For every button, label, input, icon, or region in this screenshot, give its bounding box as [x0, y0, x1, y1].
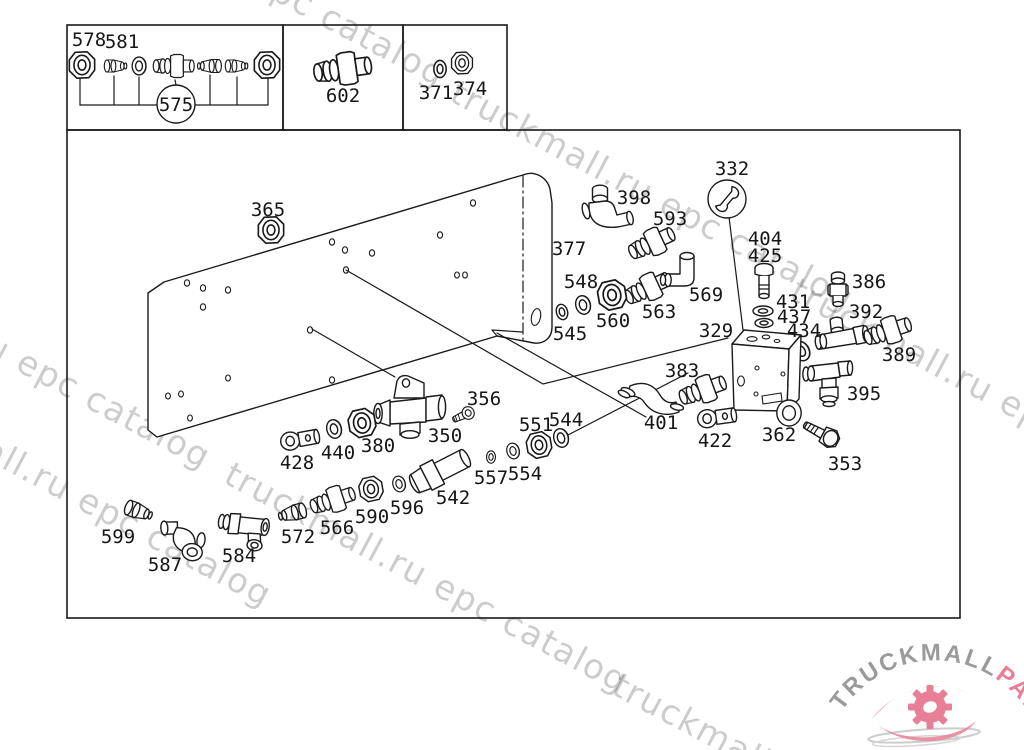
part-label-545: 545	[553, 323, 587, 345]
part-label-440: 440	[321, 442, 355, 464]
part-label-554: 554	[508, 463, 542, 485]
watermark-text: truckmall.ru epc catalog	[218, 455, 635, 702]
part-label-584: 584	[222, 545, 256, 567]
part-label-434: 434	[787, 320, 821, 342]
part-label-587: 587	[148, 554, 182, 576]
part-578-glyph	[69, 52, 94, 78]
part-329-block	[732, 330, 801, 411]
part-label-365: 365	[251, 199, 285, 221]
part-554-glyph	[505, 442, 521, 461]
part-548-glyph	[574, 294, 593, 316]
part-label-542: 542	[436, 487, 470, 509]
part-label-575: 575	[159, 94, 193, 116]
part-label-572: 572	[281, 526, 315, 548]
part-label-383: 383	[665, 360, 699, 382]
part-590-glyph	[358, 475, 385, 503]
wrench-badge-332	[708, 180, 746, 218]
part-575a-glyph	[132, 57, 146, 75]
part-575b-glyph	[153, 55, 194, 78]
part-label-544: 544	[549, 409, 583, 431]
part-371-glyph	[434, 60, 446, 77]
part-575e-glyph	[254, 52, 279, 78]
part-label-560: 560	[596, 310, 630, 332]
part-label-578: 578	[72, 29, 106, 51]
part-label-377: 377	[552, 238, 586, 260]
part-422-glyph	[696, 406, 737, 429]
part-label-392: 392	[849, 301, 883, 323]
part-label-395: 395	[847, 383, 881, 405]
part-label-362: 362	[762, 424, 796, 446]
part-374-glyph	[452, 52, 473, 74]
part-label-401: 401	[644, 412, 678, 434]
part-575c-glyph	[198, 60, 222, 73]
part-label-428: 428	[280, 452, 314, 474]
part-label-371: 371	[419, 82, 453, 104]
part-545-glyph	[555, 303, 570, 321]
part-581-glyph	[104, 60, 126, 72]
part-label-389: 389	[882, 344, 916, 366]
part-428-glyph	[279, 427, 321, 452]
part-560-glyph	[596, 278, 628, 311]
part-label-353: 353	[828, 453, 862, 475]
part-label-374: 374	[453, 78, 487, 100]
parts-diagram-canvas: truckmall.ru epc catalogtruckmall.ru epc…	[0, 0, 1024, 750]
gear-swirl-icon	[868, 685, 981, 749]
part-label-557: 557	[474, 467, 508, 489]
part-431-437-glyph	[753, 306, 773, 328]
part-label-566: 566	[320, 517, 354, 539]
part-label-425: 425	[748, 245, 782, 267]
part-395-glyph	[803, 361, 853, 407]
part-label-422: 422	[698, 430, 732, 452]
part-label-332: 332	[715, 158, 749, 180]
part-575d-glyph	[225, 60, 247, 72]
part-569-glyph	[660, 253, 694, 287]
part-label-569: 569	[689, 284, 723, 306]
part-label-386: 386	[852, 271, 886, 293]
part-label-548: 548	[564, 271, 598, 293]
part-401-glyph	[617, 383, 684, 414]
part-label-398: 398	[617, 187, 651, 209]
part-596-glyph	[391, 475, 407, 494]
part-label-329: 329	[699, 320, 733, 342]
part-label-590: 590	[355, 506, 389, 528]
part-label-350: 350	[428, 425, 462, 447]
part-label-356: 356	[467, 388, 501, 410]
part-label-602: 602	[326, 85, 360, 107]
part-362-glyph	[777, 400, 801, 426]
part-label-593: 593	[653, 208, 687, 230]
part-557-glyph	[487, 451, 496, 463]
part-440-glyph	[325, 418, 344, 440]
part-label-596: 596	[390, 497, 424, 519]
part-label-581: 581	[105, 31, 139, 53]
part-label-380: 380	[361, 435, 395, 457]
part-label-599: 599	[101, 526, 135, 548]
part-353-glyph	[800, 416, 842, 451]
part-label-563: 563	[642, 301, 676, 323]
